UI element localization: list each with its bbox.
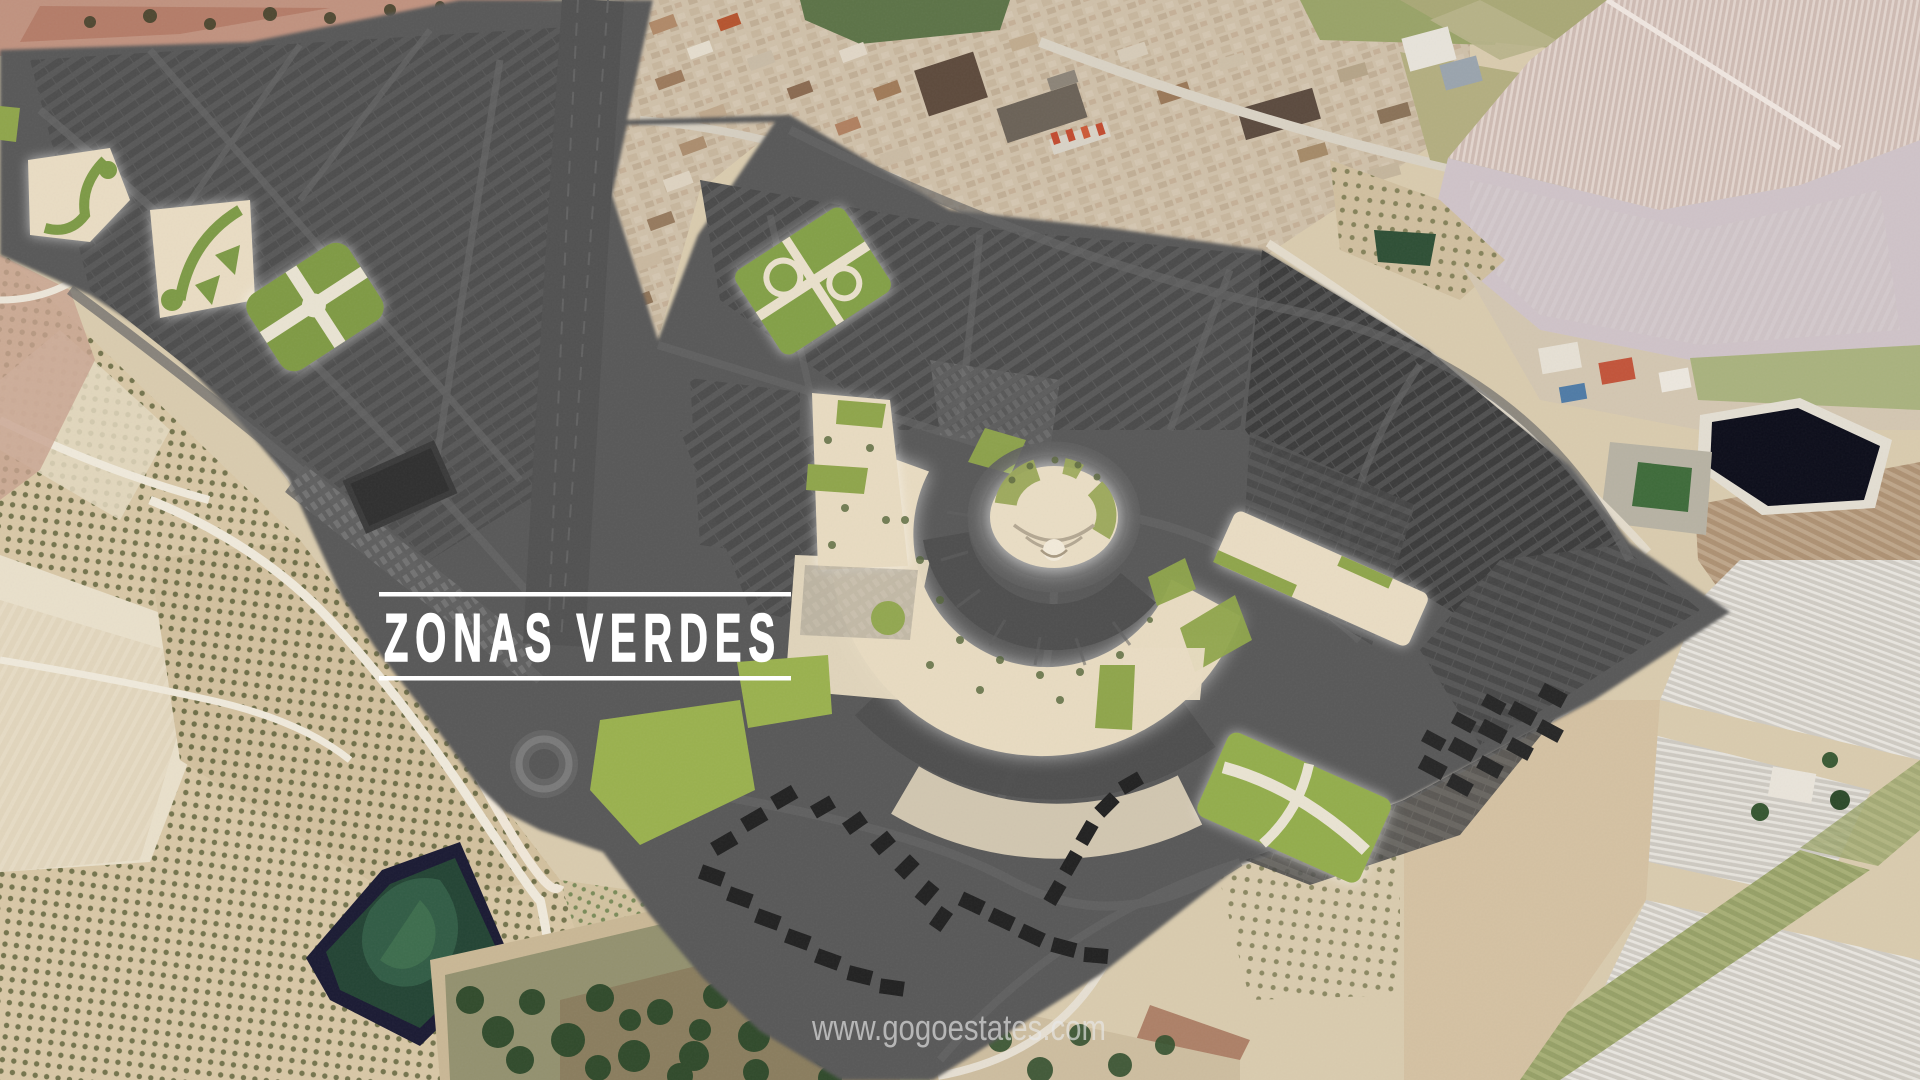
svg-text:www.gogoestates.com: www.gogoestates.com [811,1007,1106,1048]
svg-text:ZONAS VERDES: ZONAS VERDES [384,600,782,676]
